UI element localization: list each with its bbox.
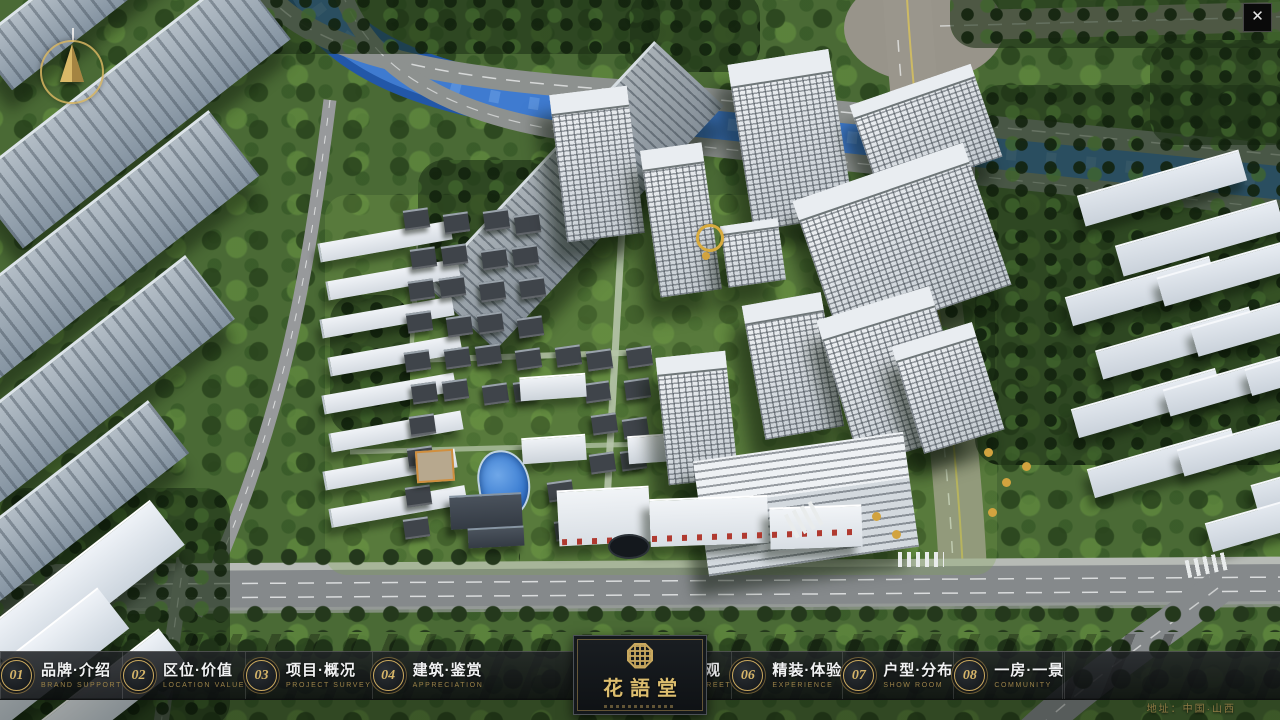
courtyard-villa bbox=[411, 381, 439, 404]
courtyard-villa bbox=[405, 484, 433, 507]
courtyard-villa bbox=[584, 380, 612, 403]
nav-group-left: 01 品牌·介绍 BRAND SUPPORT 02 区位·价值 LOCATION… bbox=[0, 652, 452, 699]
project-address: 地址：中国·山西 bbox=[1147, 700, 1236, 715]
site-aerial-view[interactable] bbox=[0, 0, 1280, 720]
courtyard-villa bbox=[443, 211, 471, 234]
gold-landmark bbox=[696, 224, 724, 252]
nav-subtitle: COMMUNITY bbox=[994, 682, 1052, 689]
presentation-window: ✕ 01 品牌·介绍 BRAND SUPPORT 02 区位·价值 LOCATI… bbox=[0, 0, 1280, 720]
compass-icon[interactable] bbox=[36, 28, 108, 104]
courtyard-villa bbox=[406, 310, 434, 333]
courtyard-villa bbox=[512, 244, 540, 267]
nav-title: 区位·价值 bbox=[163, 662, 233, 679]
residential-tower bbox=[720, 218, 786, 287]
courtyard-villa bbox=[514, 212, 542, 235]
courtyard-villa bbox=[410, 246, 438, 269]
tree-cluster bbox=[230, 0, 660, 54]
courtyard-villa bbox=[441, 243, 469, 266]
chinese-pavilion-roof bbox=[468, 526, 525, 549]
crosswalk bbox=[898, 552, 944, 567]
nav-number-badge: 01 bbox=[1, 660, 32, 691]
nav-number-badge: 06 bbox=[732, 660, 763, 691]
courtyard-villa bbox=[624, 377, 652, 400]
nav-item-project-survey[interactable]: 03 项目·概况 PROJECT SURVEY bbox=[245, 652, 372, 699]
gold-landmark bbox=[702, 252, 710, 260]
yellow-tree bbox=[984, 448, 993, 457]
entrance-feature bbox=[608, 534, 650, 559]
nav-title: 一房·一景 bbox=[994, 662, 1064, 679]
courtyard-villa bbox=[403, 207, 431, 230]
courtyard-villa bbox=[586, 348, 614, 371]
nav-title: 品牌·介绍 bbox=[41, 662, 111, 679]
nav-item-location-value[interactable]: 02 区位·价值 LOCATION VALUE bbox=[122, 652, 245, 699]
nav-subtitle: SHOW ROOM bbox=[883, 682, 943, 689]
mid-rise-block bbox=[521, 434, 587, 464]
courtyard-villa bbox=[446, 314, 474, 337]
nav-number-badge: 02 bbox=[123, 660, 154, 691]
project-logo-plaque[interactable]: 花語堂 bbox=[573, 635, 707, 715]
courtyard-villa bbox=[475, 343, 503, 366]
courtyard-villa bbox=[482, 382, 510, 405]
courtyard-villa bbox=[408, 278, 436, 301]
yellow-tree bbox=[988, 508, 997, 517]
courtyard-villa bbox=[626, 345, 654, 368]
courtyard-villa bbox=[479, 279, 507, 302]
courtyard-villa bbox=[442, 378, 470, 401]
nav-subtitle: LOCATION VALUE bbox=[163, 682, 245, 689]
nav-subtitle: EXPERIENCE bbox=[772, 682, 833, 689]
nav-item-brand-intro[interactable]: 01 品牌·介绍 BRAND SUPPORT bbox=[0, 652, 122, 699]
tree-cluster bbox=[1150, 40, 1280, 145]
yellow-tree bbox=[872, 512, 881, 521]
nav-subtitle: BRAND SUPPORT bbox=[41, 682, 122, 689]
courtyard-villa bbox=[409, 413, 437, 436]
nav-number-badge: 07 bbox=[843, 660, 874, 691]
courtyard-villa bbox=[589, 451, 617, 474]
courtyard-villa bbox=[444, 346, 472, 369]
nav-subtitle: PROJECT SURVEY bbox=[286, 682, 372, 689]
nav-item-floorplan[interactable]: 07 户型·分布 SHOW ROOM bbox=[842, 652, 953, 699]
logo-caption-line bbox=[604, 705, 676, 708]
mid-rise-block bbox=[519, 373, 587, 402]
close-button[interactable]: ✕ bbox=[1243, 3, 1272, 32]
courtyard-villa bbox=[403, 516, 431, 539]
nav-number-badge: 08 bbox=[954, 660, 985, 691]
courtyard-villa bbox=[439, 275, 467, 298]
project-name: 花語堂 bbox=[596, 672, 684, 701]
nav-spacer bbox=[1062, 652, 1280, 699]
nav-title: 项目·概况 bbox=[286, 662, 356, 679]
courtyard-villa bbox=[515, 347, 543, 370]
courtyard-villa bbox=[477, 311, 505, 334]
nav-title: 精装·体验 bbox=[772, 662, 842, 679]
yellow-tree bbox=[892, 530, 901, 539]
nav-title: 户型·分布 bbox=[883, 662, 953, 679]
close-icon: ✕ bbox=[1251, 8, 1264, 25]
courtyard-villa bbox=[481, 247, 509, 270]
courtyard-villa bbox=[555, 344, 583, 367]
yellow-tree bbox=[1002, 478, 1011, 487]
yellow-tree bbox=[1022, 462, 1031, 471]
nav-item-room-view[interactable]: 08 一房·一景 COMMUNITY bbox=[953, 652, 1065, 699]
seal-icon bbox=[627, 643, 653, 669]
courtyard-villa bbox=[517, 315, 545, 338]
street-trees bbox=[0, 602, 1280, 632]
chinese-pavilion-roof bbox=[449, 492, 523, 530]
courtyard-villa bbox=[591, 412, 619, 435]
courtyard-villa bbox=[404, 349, 432, 372]
nav-number-badge: 03 bbox=[246, 660, 277, 691]
courtyard-villa bbox=[483, 208, 511, 231]
nav-number-badge: 04 bbox=[373, 660, 404, 691]
amenity-building bbox=[415, 449, 455, 484]
courtyard-villa bbox=[519, 276, 547, 299]
nav-item-interior-experience[interactable]: 06 精装·体验 EXPERIENCE bbox=[731, 652, 842, 699]
